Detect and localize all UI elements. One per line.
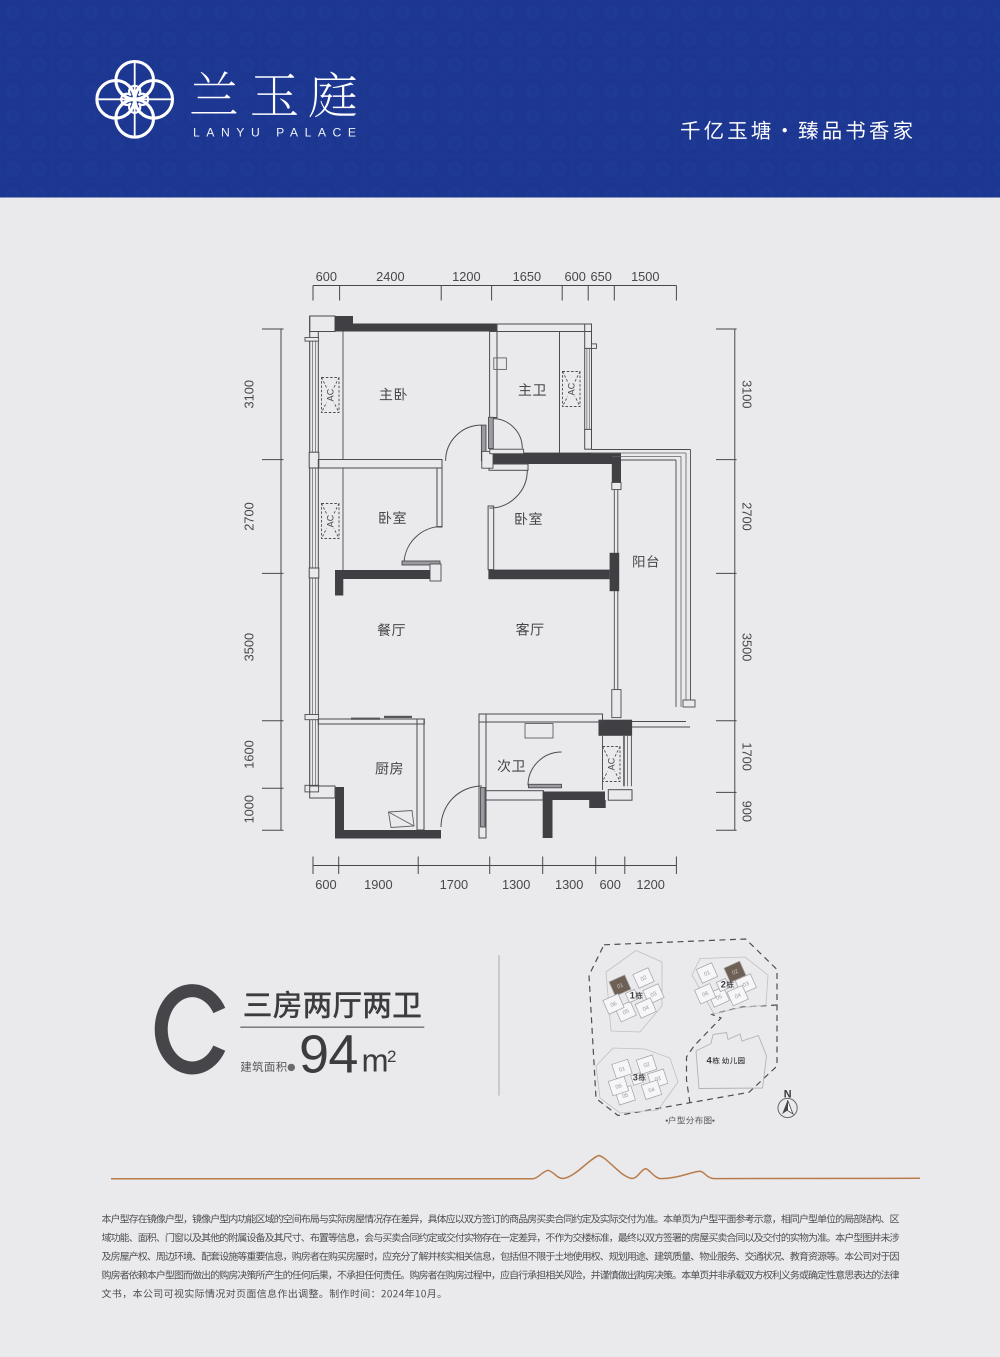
svg-text:600: 600 — [315, 877, 336, 892]
svg-text:4: 4 — [707, 1056, 713, 1067]
svg-text:3500: 3500 — [242, 633, 257, 661]
svg-text:3: 3 — [633, 1072, 638, 1082]
svg-text:2: 2 — [387, 1047, 396, 1066]
svg-text:1650: 1650 — [513, 269, 541, 284]
svg-text:1500: 1500 — [631, 269, 659, 284]
svg-text:1000: 1000 — [242, 795, 257, 823]
svg-text:AC: AC — [325, 388, 335, 401]
svg-text:2700: 2700 — [242, 502, 257, 530]
svg-text:1700: 1700 — [440, 877, 468, 892]
svg-text:1700: 1700 — [740, 742, 755, 770]
svg-text:1200: 1200 — [452, 269, 480, 284]
svg-text:900: 900 — [740, 801, 755, 822]
svg-text:2700: 2700 — [740, 502, 755, 530]
svg-text:3100: 3100 — [242, 380, 257, 408]
svg-text:600: 600 — [600, 877, 621, 892]
svg-text:650: 650 — [591, 269, 612, 284]
svg-text:AC: AC — [566, 382, 576, 395]
svg-text:600: 600 — [565, 269, 586, 284]
svg-text:2400: 2400 — [376, 269, 404, 284]
svg-text:1300: 1300 — [502, 877, 530, 892]
svg-text:AC: AC — [606, 757, 616, 770]
svg-text:2: 2 — [721, 980, 726, 990]
svg-text:1300: 1300 — [555, 877, 583, 892]
svg-text:m: m — [362, 1043, 389, 1079]
svg-text:94: 94 — [299, 1024, 358, 1084]
svg-text:N: N — [784, 1089, 792, 1101]
svg-text:1600: 1600 — [242, 740, 257, 768]
svg-text:3500: 3500 — [740, 633, 755, 661]
svg-text:1: 1 — [630, 991, 635, 1001]
svg-text:600: 600 — [316, 269, 337, 284]
svg-text:AC: AC — [325, 514, 335, 527]
svg-text:1900: 1900 — [364, 877, 392, 892]
svg-text:3100: 3100 — [740, 380, 755, 408]
svg-text:1200: 1200 — [636, 877, 664, 892]
